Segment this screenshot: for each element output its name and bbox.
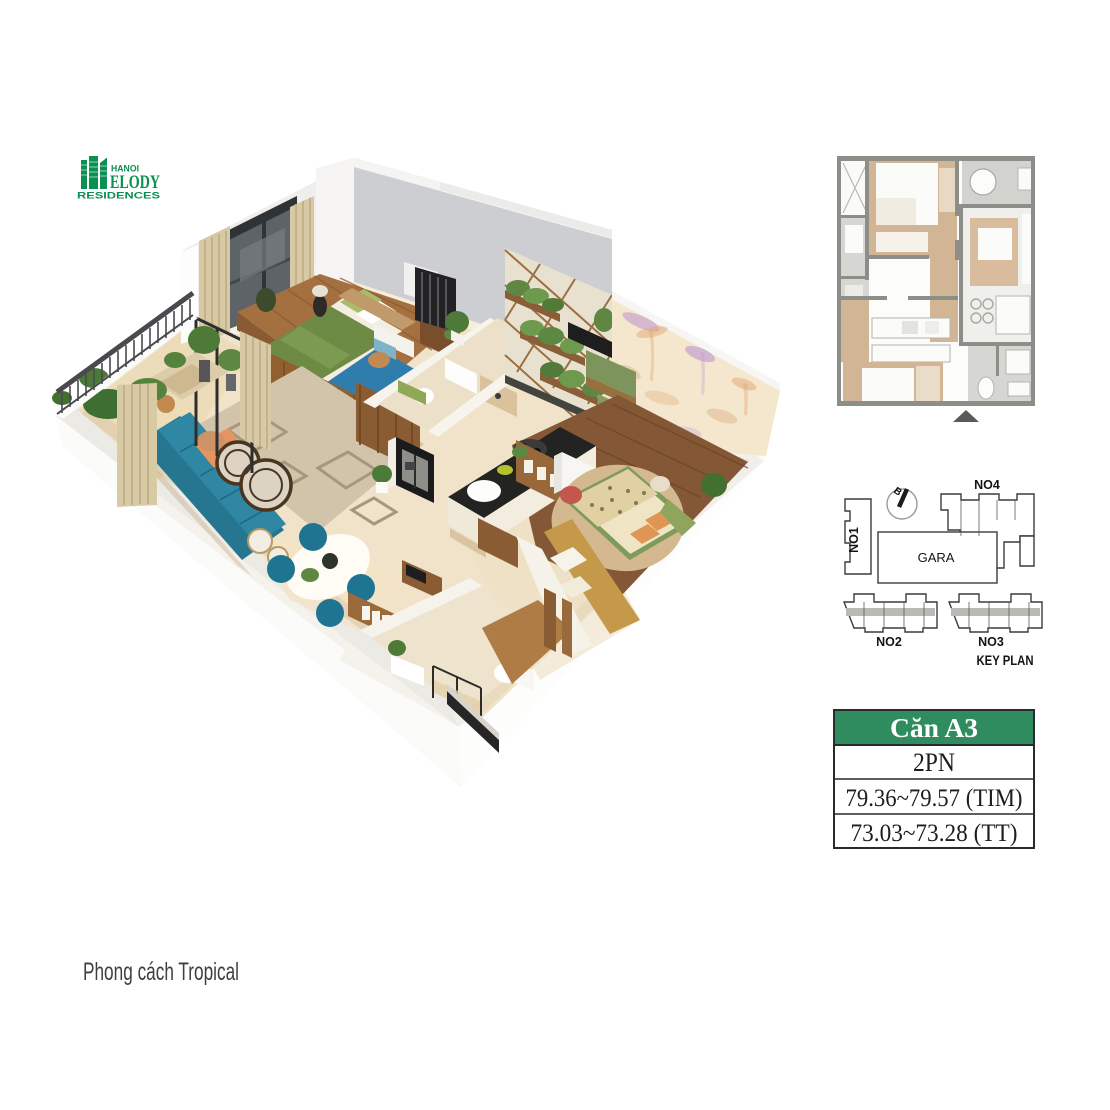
svg-text:Căn A3: Căn A3 — [890, 713, 978, 743]
svg-text:NO3: NO3 — [978, 635, 1004, 649]
svg-text:GARA: GARA — [918, 550, 955, 565]
svg-text:RESIDENCES: RESIDENCES — [77, 191, 160, 201]
svg-text:NO4: NO4 — [974, 478, 1000, 492]
svg-text:2PN: 2PN — [913, 748, 955, 777]
svg-text:NO2: NO2 — [876, 635, 902, 649]
svg-text:NO1: NO1 — [847, 527, 861, 553]
svg-text:79.36~79.57 (TIM): 79.36~79.57 (TIM) — [846, 785, 1023, 812]
svg-text:Phong cách Tropical: Phong cách Tropical — [83, 958, 239, 986]
svg-text:KEY PLAN: KEY PLAN — [977, 653, 1034, 668]
svg-text:73.03~73.28 (TT): 73.03~73.28 (TT) — [851, 820, 1018, 847]
